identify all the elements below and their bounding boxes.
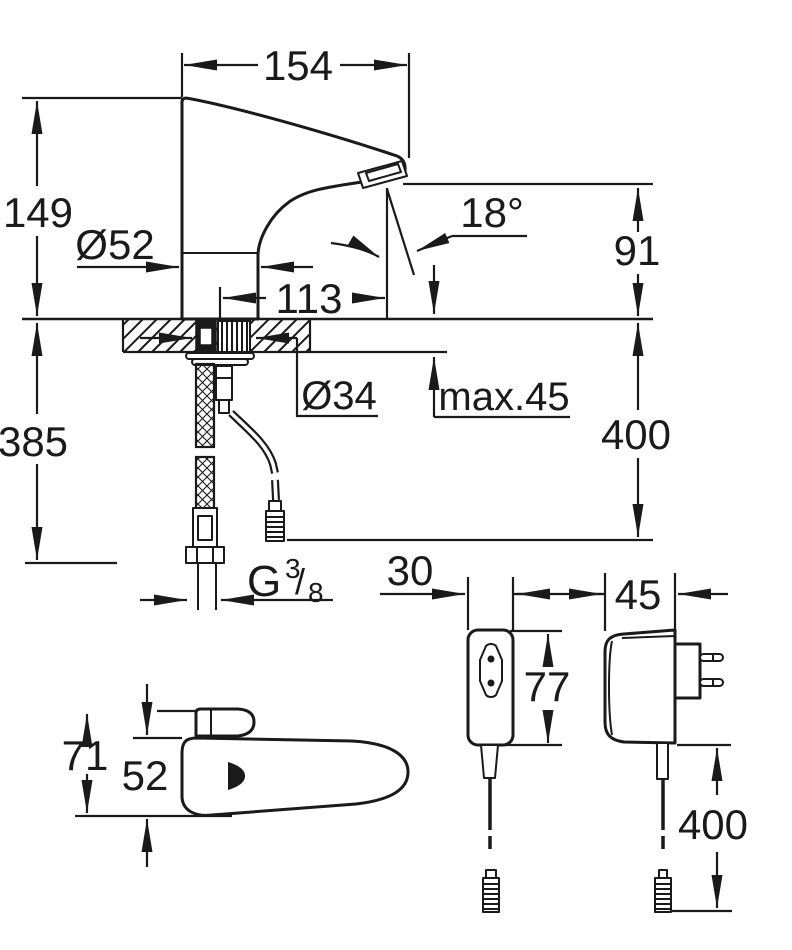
hole-diameter-label: Ø34: [301, 374, 377, 418]
cable-tail-core: [275, 480, 276, 500]
outlet-height-label: 91: [614, 227, 661, 274]
socket-width-label: 30: [387, 547, 434, 594]
depth-label: 71: [62, 732, 109, 779]
power-adapter-view: 45 400: [578, 571, 748, 912]
height-label: 149: [3, 189, 73, 236]
socket-connector-tip: [486, 870, 496, 878]
top-view-body: [182, 738, 408, 815]
adapter-body: [605, 630, 675, 743]
braided-hose-upper: [196, 364, 214, 447]
reach-label: 113: [276, 275, 343, 322]
connection-pipe: [198, 563, 216, 610]
adapter-plug-block: [675, 644, 700, 698]
dimension-drawing-canvas: 154 149 Ø52 113 18° 91 400: [0, 0, 792, 950]
socket-cable-neck: [481, 745, 498, 778]
braided-hose-lower: [196, 457, 214, 508]
faucet-top-view: 71 52: [62, 684, 408, 867]
stream-angle-line: [387, 189, 414, 275]
adapter-connector-tip: [659, 870, 667, 878]
adapter-pin-bottom: [700, 679, 723, 686]
counter-section: [22, 319, 653, 352]
sensor-cable: [231, 413, 284, 541]
socket-pin-hole-bottom: [488, 680, 495, 687]
swivel-arc-arrow: [331, 243, 379, 257]
adapter-pin-top: [700, 654, 723, 661]
euro-socket-face: [480, 644, 502, 697]
thread-label-denominator: 8: [308, 577, 324, 608]
cable-junction-step: [219, 400, 229, 413]
cable-run-outer: [231, 413, 275, 473]
technical-drawing-page: 154 149 Ø52 113 18° 91 400: [0, 0, 792, 950]
deck-thickness-label: max.45: [438, 375, 569, 419]
plug-socket-view: 30 77: [380, 547, 604, 912]
cable-connector-tip: [269, 501, 281, 511]
spray-angle-label: 18°: [460, 189, 524, 236]
hose-fitting-window: [198, 516, 212, 540]
thread-label-slash: /: [295, 561, 305, 602]
cable-junction-box: [216, 366, 232, 400]
top-view-spout-end: [196, 709, 254, 736]
body-width-label: 52: [122, 752, 169, 799]
adapter-width-label: 45: [615, 571, 662, 618]
socket-width-extensions: [468, 577, 513, 630]
adapter-cable-label: 400: [678, 801, 748, 848]
socket-pin-hole-top: [488, 656, 495, 663]
dimensions-side-view: 154 149 Ø52 113 18° 91 400: [0, 42, 671, 608]
mounting-shank-window: [200, 328, 212, 345]
adapter-cable-neck: [657, 743, 668, 779]
spout-length-label: 154: [263, 42, 333, 89]
angle-leader-arrow: [417, 236, 452, 251]
base-diameter-label: Ø52: [75, 221, 154, 268]
thread-label-prefix: G: [247, 557, 281, 606]
cable-length-label: 400: [601, 411, 671, 458]
socket-height-label: 77: [524, 663, 571, 710]
hose-nut: [186, 547, 224, 563]
hose-length-label: 385: [0, 418, 68, 465]
